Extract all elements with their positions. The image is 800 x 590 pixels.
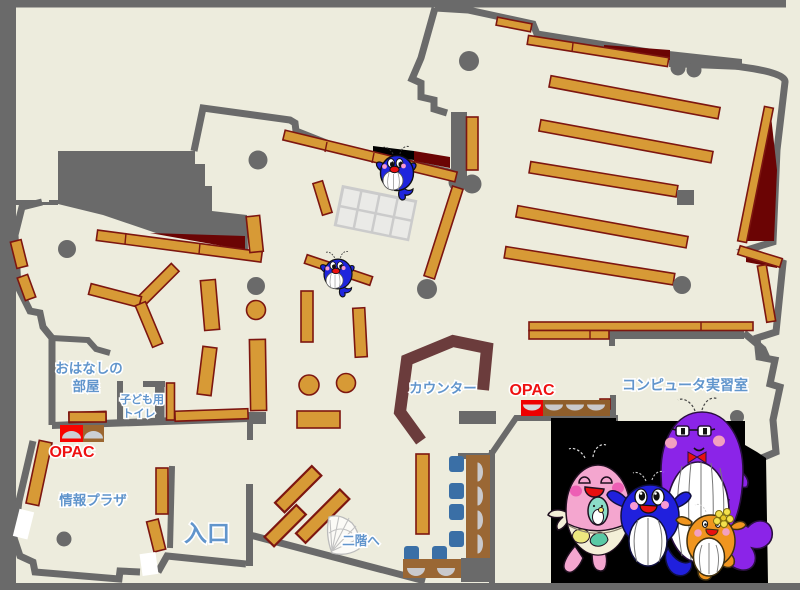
svg-text:部屋: 部屋 xyxy=(73,378,100,394)
svg-text:コンピュータ実習室: コンピュータ実習室 xyxy=(622,377,748,393)
svg-text:二階へ: 二階へ xyxy=(342,533,380,548)
svg-text:OPAC: OPAC xyxy=(49,444,94,461)
svg-text:情報プラザ: 情報プラザ xyxy=(59,492,127,508)
svg-text:OPAC: OPAC xyxy=(509,382,554,399)
svg-text:子ども用: 子ども用 xyxy=(120,393,164,406)
svg-text:入口: 入口 xyxy=(184,520,230,546)
svg-text:トイレ: トイレ xyxy=(123,407,156,420)
svg-text:おはなしの: おはなしの xyxy=(55,361,123,376)
svg-text:カウンター: カウンター xyxy=(409,381,477,396)
